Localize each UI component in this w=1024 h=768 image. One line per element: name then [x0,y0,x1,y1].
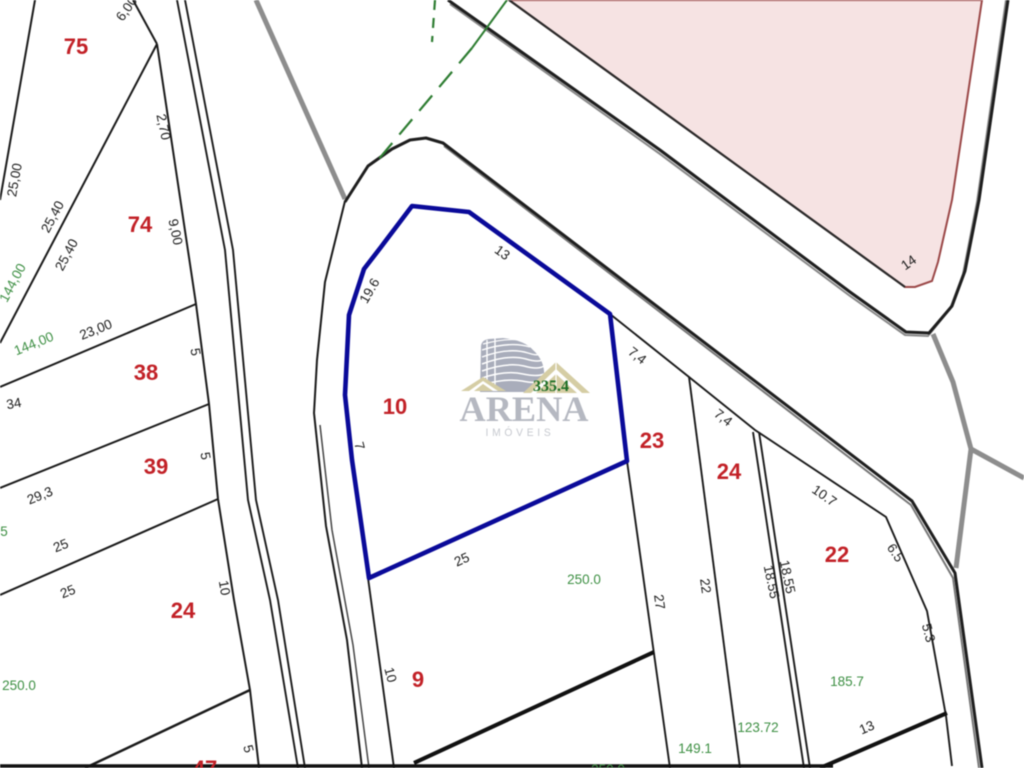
svg-text:10: 10 [216,579,233,596]
svg-text:149.1: 149.1 [678,741,712,756]
svg-text:250.0: 250.0 [567,572,601,587]
svg-text:10: 10 [383,394,407,419]
svg-text:IMÓVEIS: IMÓVEIS [486,426,555,439]
svg-text:39: 39 [144,454,168,479]
svg-text:24: 24 [717,459,742,484]
svg-text:24: 24 [171,598,196,623]
svg-text:34: 34 [5,395,23,412]
svg-text:335.4: 335.4 [533,378,569,395]
svg-text:123.72: 123.72 [737,720,778,735]
svg-text:47: 47 [193,756,217,768]
svg-text:9: 9 [412,667,424,692]
svg-text:5: 5 [0,524,8,539]
svg-text:75: 75 [64,34,88,59]
svg-text:22: 22 [825,542,849,567]
svg-text:ARENA: ARENA [460,389,589,429]
svg-text:22: 22 [697,577,714,594]
svg-text:250.0: 250.0 [591,762,625,768]
svg-text:38: 38 [134,360,158,385]
svg-text:250.0: 250.0 [2,678,36,693]
svg-text:74: 74 [128,212,153,237]
svg-text:27: 27 [651,593,668,610]
svg-text:23: 23 [640,428,664,453]
svg-text:185.7: 185.7 [830,674,864,689]
